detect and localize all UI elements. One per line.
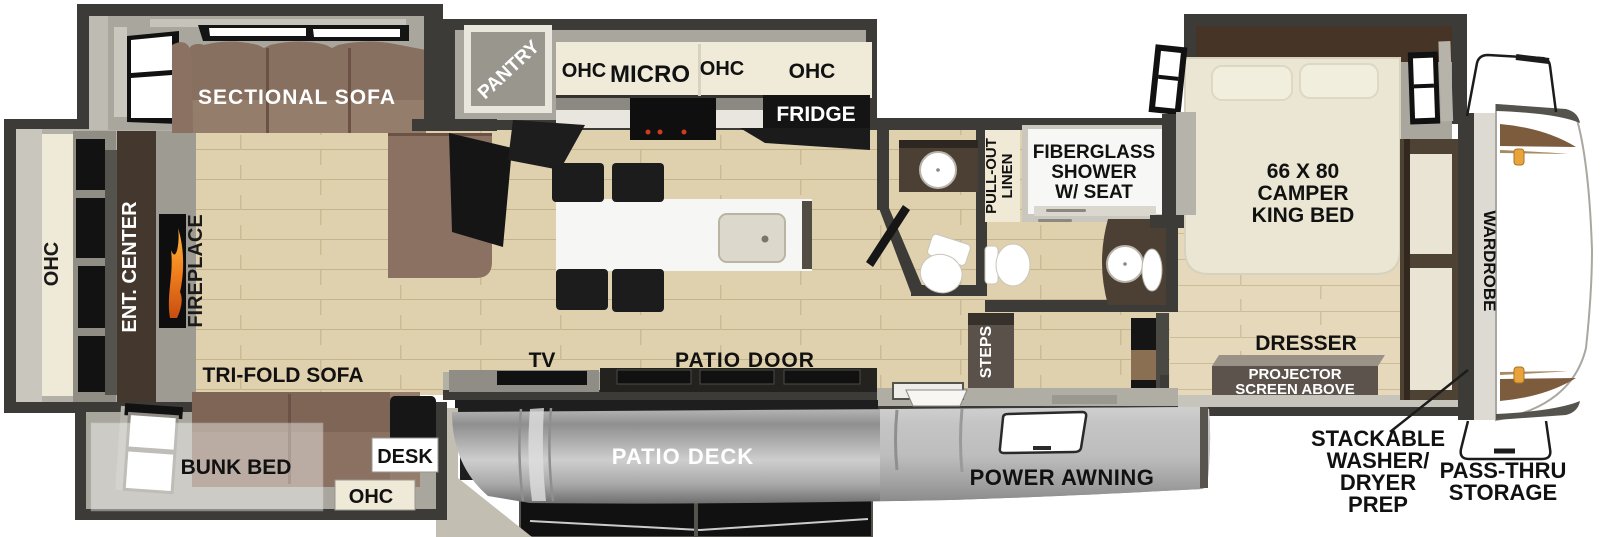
svg-text:CAMPER: CAMPER bbox=[1257, 182, 1348, 205]
svg-text:MICRO: MICRO bbox=[610, 61, 690, 88]
svg-text:W/ SEAT: W/ SEAT bbox=[1055, 182, 1133, 203]
svg-text:POWER AWNING: POWER AWNING bbox=[970, 465, 1155, 490]
svg-text:LINEN: LINEN bbox=[999, 154, 1016, 199]
svg-text:SHOWER: SHOWER bbox=[1051, 162, 1137, 183]
svg-text:WARDROBE: WARDROBE bbox=[1480, 210, 1499, 311]
svg-text:FIBERGLASS: FIBERGLASS bbox=[1033, 142, 1155, 163]
svg-text:STORAGE: STORAGE bbox=[1449, 480, 1557, 505]
svg-text:ENT. CENTER: ENT. CENTER bbox=[119, 201, 141, 333]
svg-text:SECTIONAL SOFA: SECTIONAL SOFA bbox=[198, 86, 396, 109]
svg-text:FIREPLACE: FIREPLACE bbox=[185, 214, 207, 327]
svg-text:FRIDGE: FRIDGE bbox=[776, 103, 855, 126]
svg-text:STEPS: STEPS bbox=[978, 325, 995, 378]
svg-text:PATIO DECK: PATIO DECK bbox=[612, 444, 754, 469]
svg-text:PATIO DOOR: PATIO DOOR bbox=[675, 349, 815, 372]
svg-text:PULL-OUT: PULL-OUT bbox=[983, 138, 1000, 214]
svg-text:OHC: OHC bbox=[349, 486, 393, 508]
svg-text:PREP: PREP bbox=[1348, 492, 1408, 517]
svg-text:OHC: OHC bbox=[789, 60, 836, 83]
svg-text:TV: TV bbox=[529, 349, 556, 372]
svg-text:OHC: OHC bbox=[41, 242, 63, 286]
svg-text:TRI-FOLD SOFA: TRI-FOLD SOFA bbox=[203, 364, 364, 387]
svg-text:BUNK BED: BUNK BED bbox=[181, 456, 292, 479]
svg-text:DRESSER: DRESSER bbox=[1255, 332, 1357, 355]
svg-text:KING BED: KING BED bbox=[1252, 204, 1355, 227]
svg-text:OHC: OHC bbox=[700, 58, 744, 80]
svg-text:OHC: OHC bbox=[562, 60, 606, 82]
svg-text:66 X 80: 66 X 80 bbox=[1267, 160, 1339, 183]
svg-text:DESK: DESK bbox=[377, 446, 433, 468]
